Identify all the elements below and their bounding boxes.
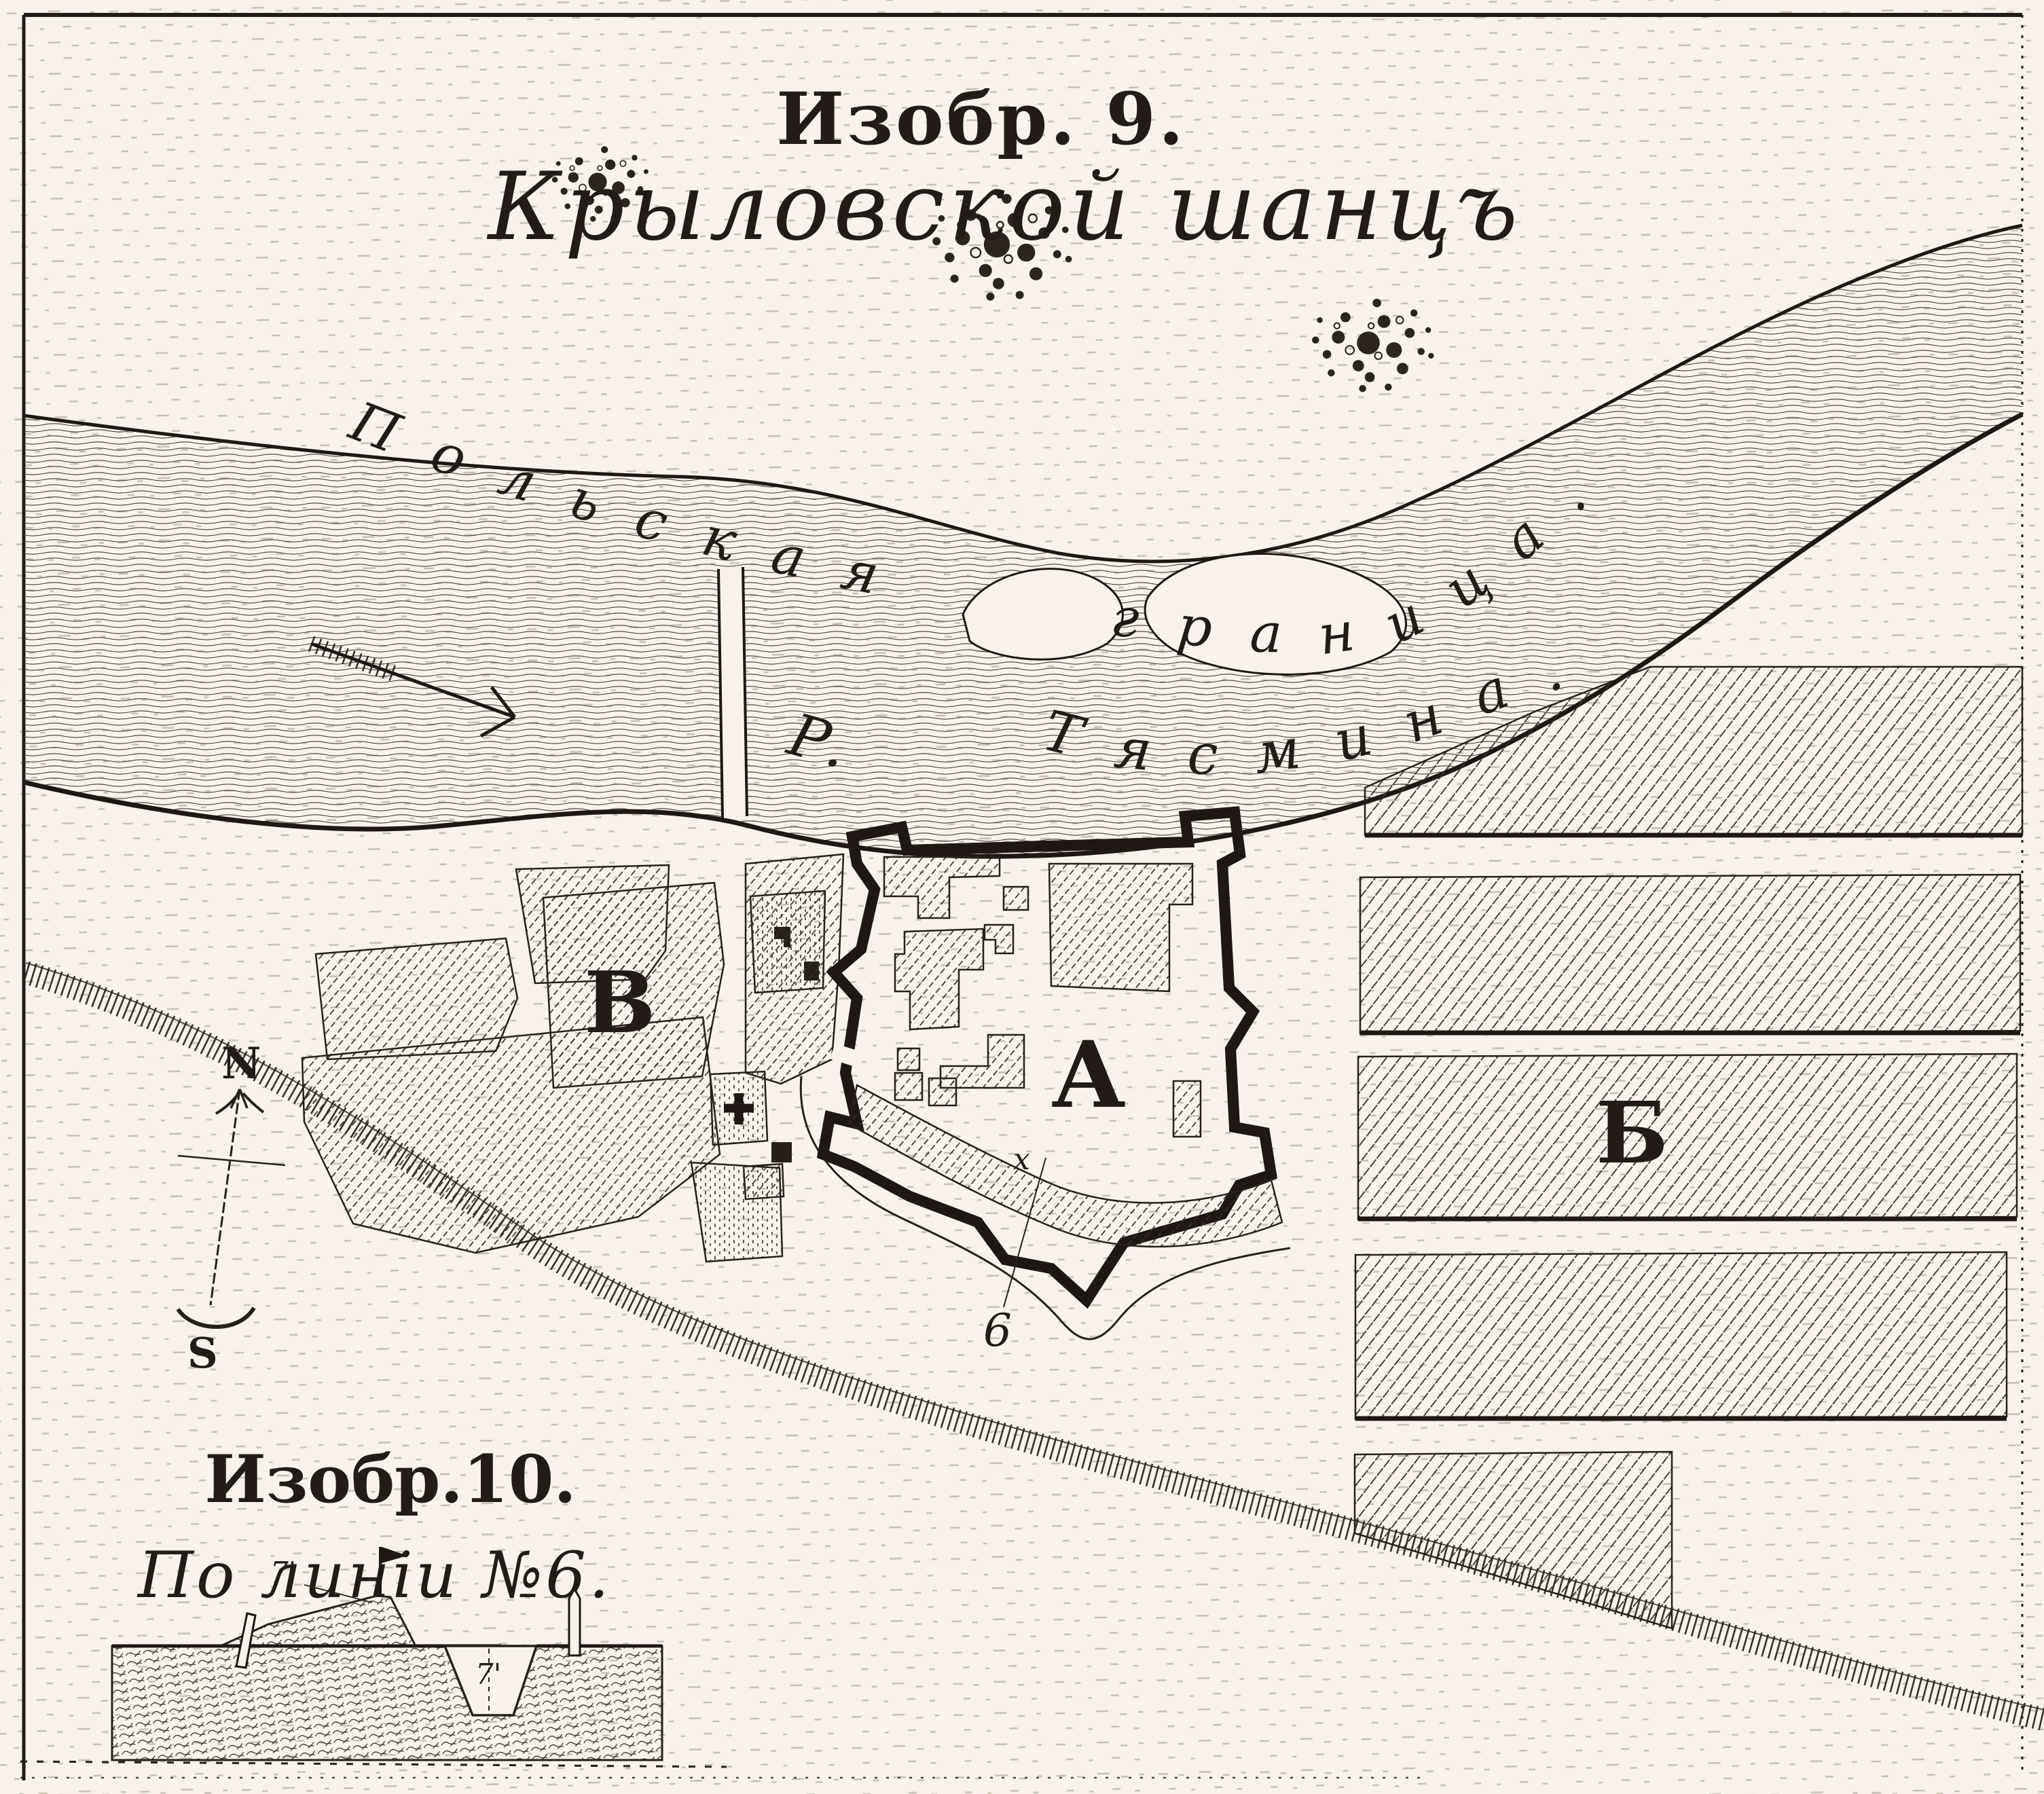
figure9-caption: Изобр. 9. [776,76,1186,161]
profile-line-label: 6 [983,1304,1012,1357]
town-block [691,1163,782,1262]
figure9-title: Крыловской шанцъ [486,152,1522,261]
field-strip [1355,1252,2007,1419]
fortress-gate-gap [833,1051,862,1061]
citadel-label: А [1051,1021,1126,1129]
suburb-label: В [584,953,656,1052]
rampart-crossing-mark: х [1013,1142,1030,1177]
profile-ground [112,1646,662,1760]
citadel-building [1004,887,1028,910]
citadel-building [898,1048,919,1070]
compass-north-label: N [221,1038,261,1089]
town-block [746,854,843,1084]
bridge [718,567,747,818]
compass-south-label: S [187,1328,218,1378]
figure10-caption: Изобр.10. [204,1441,577,1518]
small-building [771,1142,792,1163]
citadel-building [1173,1081,1201,1137]
field-strip [1360,875,2020,1033]
parapet-measurement: 7' [270,1556,296,1589]
town-block [895,1073,922,1100]
field-strip [1358,1054,2017,1220]
palisade-stake [569,1589,580,1655]
ditch-measurement: 7' [475,1658,501,1691]
field-strips-label: Б [1596,1084,1668,1183]
engraved-map-sheet: Польская граница. Р. Тясмина. [0,0,2044,1794]
